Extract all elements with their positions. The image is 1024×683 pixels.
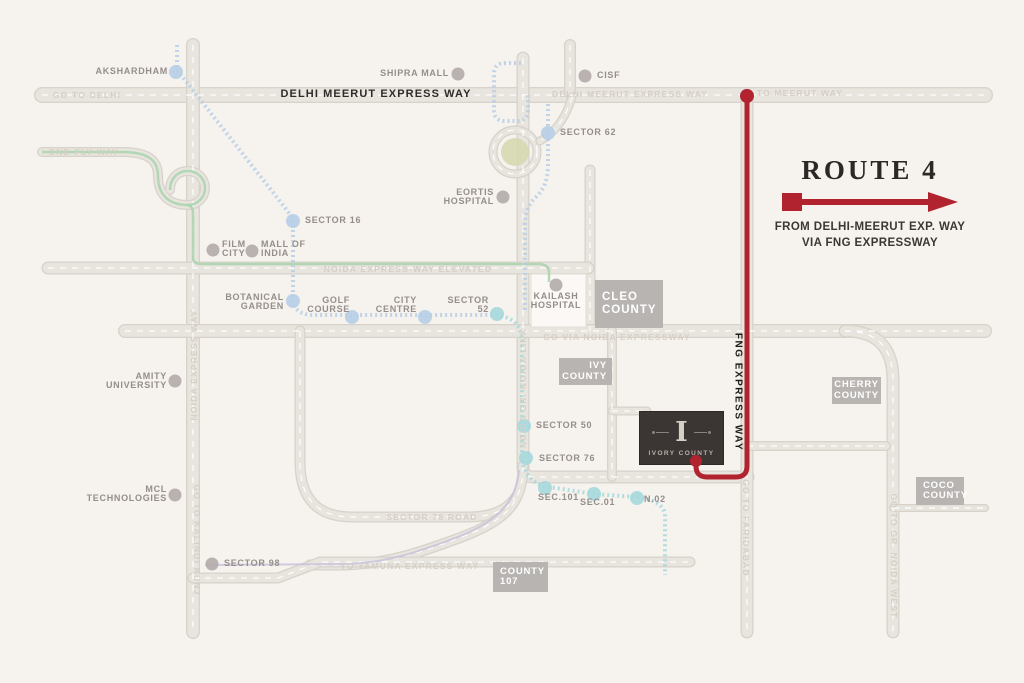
route-4-path [696,96,747,477]
route-4-overlay [0,0,1024,683]
route-description-line2: VIA FNG EXPRESSWAY [770,235,970,251]
route-map: DELHI MEERUT EXPRESS WAY FNG EXPRESS WAY… [0,0,1024,683]
route-start-dot [740,89,754,103]
route-description-line1: FROM DELHI-MEERUT EXP. WAY [770,219,970,235]
route-legend-panel: ROUTE 4 FROM DELHI-MEERUT EXP. WAY VIA F… [770,155,970,251]
route-end-dot [690,455,702,467]
route-title: ROUTE 4 [770,155,970,186]
route-arrow-icon [780,190,960,214]
